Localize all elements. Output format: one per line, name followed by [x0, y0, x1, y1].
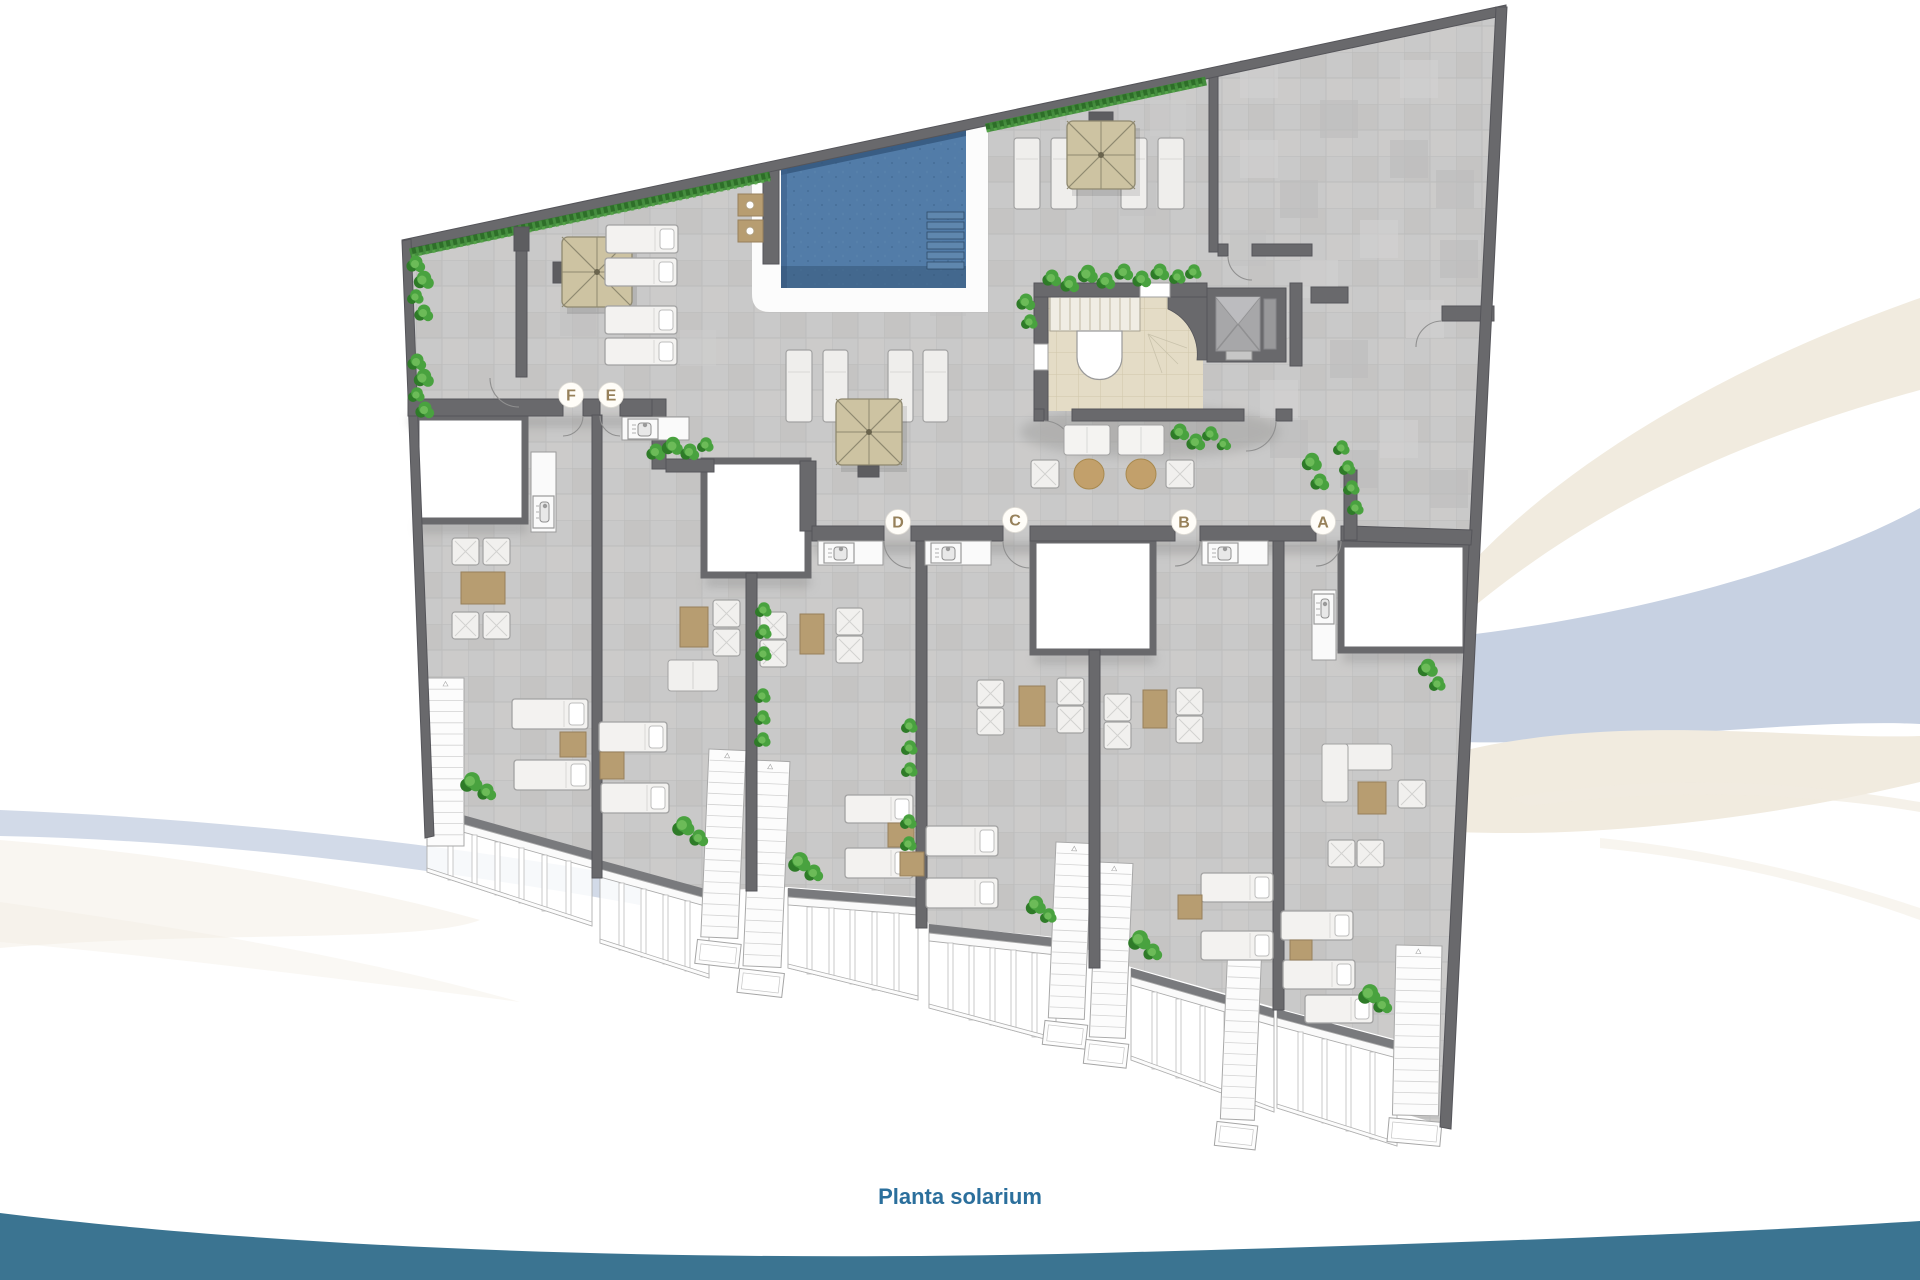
svg-text:D: D — [892, 515, 904, 532]
svg-text:E: E — [606, 388, 617, 405]
svg-text:C: C — [1009, 513, 1021, 530]
svg-text:B: B — [1178, 515, 1190, 532]
svg-text:Planta solarium: Planta solarium — [878, 1184, 1042, 1209]
svg-text:F: F — [566, 388, 576, 405]
svg-text:A: A — [1317, 515, 1329, 532]
